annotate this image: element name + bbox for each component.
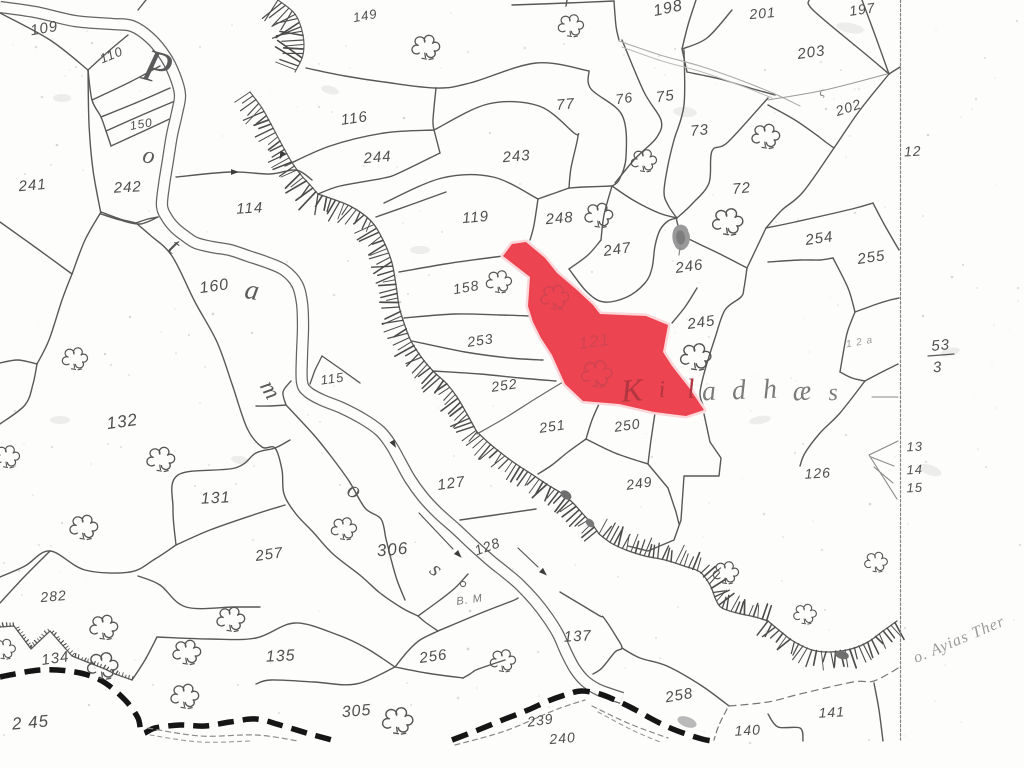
svg-text:241: 241 [17,176,47,195]
svg-text:244: 244 [362,148,392,167]
svg-text:s: s [827,380,839,407]
svg-text:75: 75 [655,87,676,106]
svg-text:119: 119 [461,208,489,227]
svg-text:14: 14 [906,462,923,478]
svg-text:K: K [619,371,645,409]
svg-text:h: h [762,374,779,406]
svg-text:13: 13 [906,439,923,455]
svg-text:114: 114 [236,199,264,217]
svg-text:76: 76 [614,89,634,107]
svg-text:240: 240 [548,729,577,747]
svg-text:141: 141 [818,703,845,720]
svg-text:201: 201 [748,4,777,22]
svg-text:73: 73 [690,121,710,140]
svg-text:d: d [731,375,748,407]
svg-text:72: 72 [732,179,752,198]
svg-text:242: 242 [112,178,142,196]
svg-text:3: 3 [932,359,943,377]
svg-text:248: 248 [544,209,574,228]
svg-text:53: 53 [931,336,951,355]
svg-text:306: 306 [376,539,409,561]
svg-text:2 45: 2 45 [10,711,50,733]
svg-text:12: 12 [904,143,922,160]
svg-text:140: 140 [734,721,761,738]
svg-text:126: 126 [804,464,831,481]
svg-text:243: 243 [501,147,531,166]
svg-text:15: 15 [906,480,923,496]
svg-text:77: 77 [556,95,576,114]
svg-text:135: 135 [265,647,296,666]
svg-text:305: 305 [341,702,372,722]
svg-text:137: 137 [563,627,592,645]
svg-text:282: 282 [39,587,68,605]
svg-text:131: 131 [200,489,231,508]
svg-text:a: a [701,376,718,408]
svg-text:æ: æ [792,375,814,407]
